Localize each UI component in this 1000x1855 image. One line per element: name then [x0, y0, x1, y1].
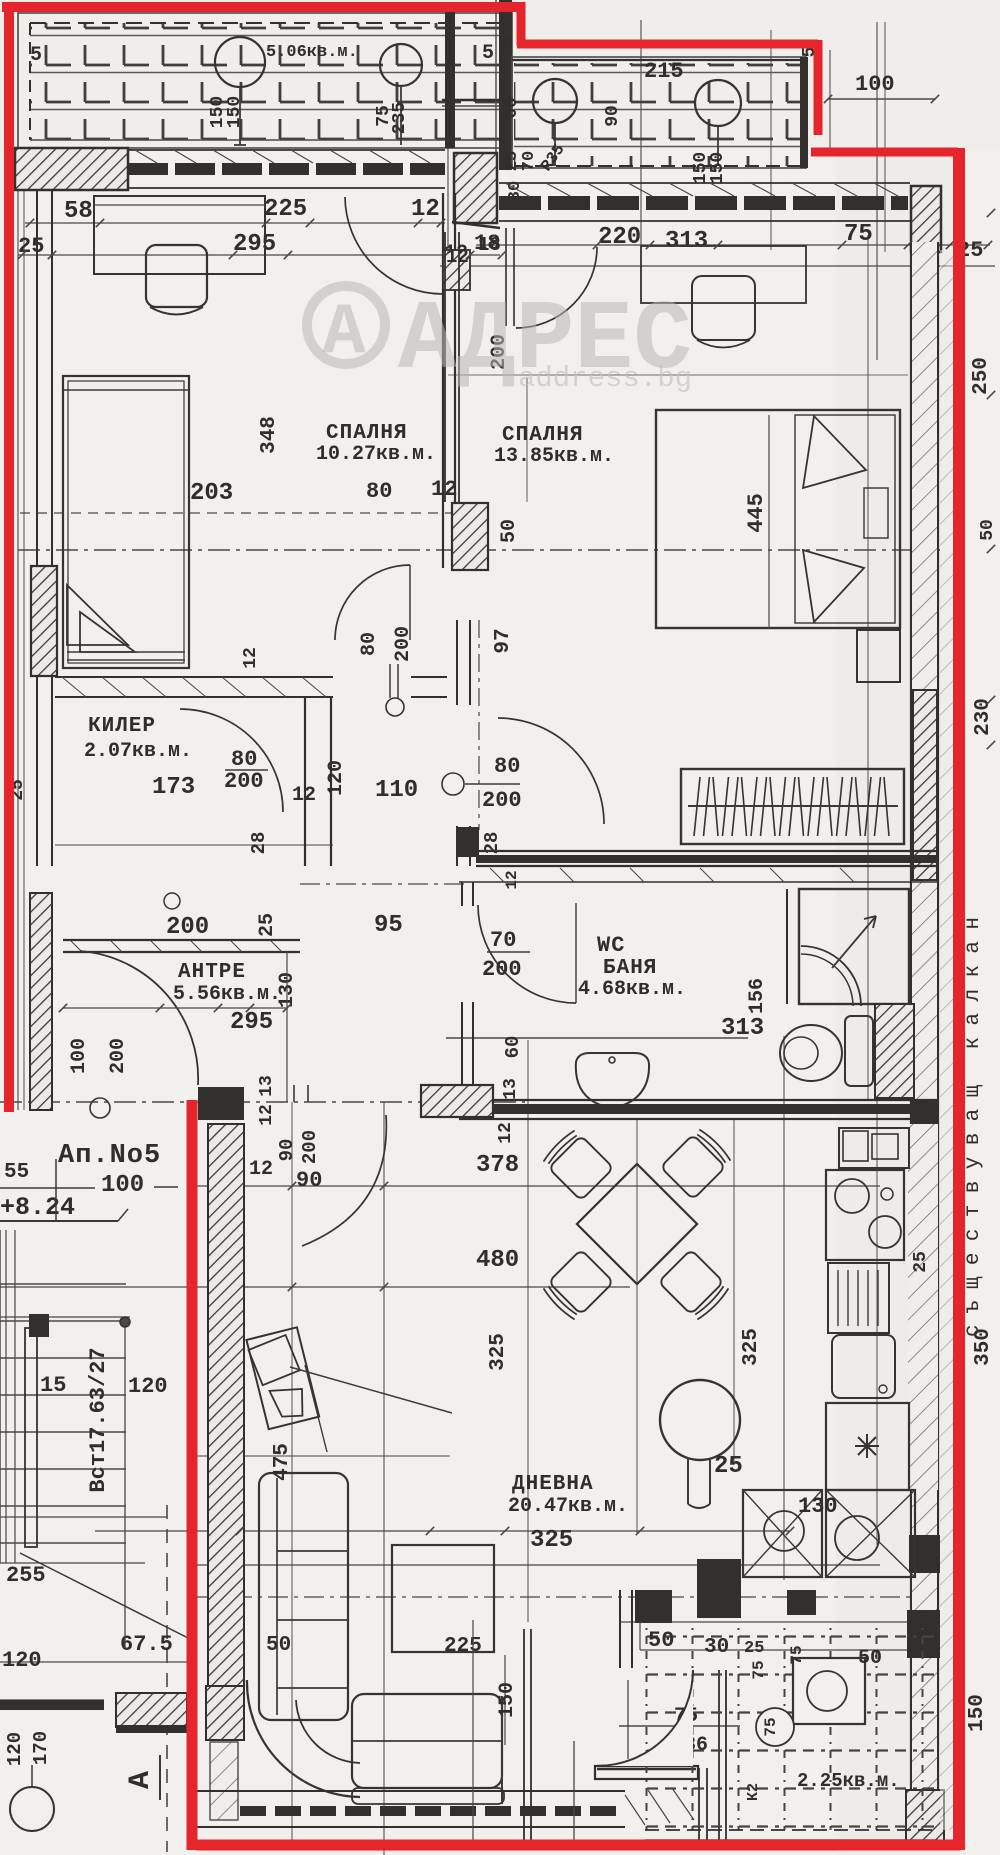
svg-text:313: 313 — [721, 1015, 764, 1042]
svg-text:95: 95 — [374, 912, 403, 939]
svg-text:200: 200 — [482, 788, 522, 813]
svg-text:4.68кв.м.: 4.68кв.м. — [578, 978, 686, 1001]
svg-text:25: 25 — [714, 1453, 743, 1480]
svg-text:156: 156 — [746, 978, 769, 1014]
svg-text:97: 97 — [492, 628, 515, 653]
svg-text:90: 90 — [603, 105, 623, 127]
svg-text:200: 200 — [482, 957, 522, 982]
svg-text:325: 325 — [740, 1328, 763, 1366]
svg-text:220: 220 — [598, 224, 641, 251]
svg-text:50: 50 — [498, 519, 521, 543]
svg-text:28: 28 — [248, 832, 270, 855]
svg-text:75: 75 — [844, 221, 873, 248]
svg-text:10.27кв.м.: 10.27кв.м. — [316, 443, 436, 466]
svg-text:200: 200 — [166, 914, 209, 941]
svg-text:18: 18 — [478, 234, 501, 256]
svg-text:КИЛЕР: КИЛЕР — [88, 715, 156, 738]
svg-text:Ап.No5: Ап.No5 — [58, 1141, 161, 1171]
svg-text:70: 70 — [490, 928, 516, 953]
svg-text:200: 200 — [107, 1038, 130, 1074]
svg-text:225: 225 — [264, 196, 307, 223]
svg-text:313: 313 — [665, 228, 708, 255]
svg-text:295: 295 — [230, 1009, 273, 1036]
svg-text:225: 225 — [444, 1635, 482, 1658]
svg-text:30: 30 — [704, 1636, 729, 1659]
svg-text:5.56кв.м.: 5.56кв.м. — [173, 983, 281, 1006]
svg-text:20.47кв.м.: 20.47кв.м. — [508, 1495, 628, 1518]
svg-text:120: 120 — [4, 1732, 26, 1766]
svg-text:150: 150 — [708, 152, 728, 184]
svg-text:120: 120 — [128, 1374, 168, 1399]
svg-text:445: 445 — [744, 493, 769, 533]
svg-text:130: 130 — [798, 1494, 838, 1519]
svg-text:230: 230 — [972, 698, 995, 736]
svg-text:2.25кв.м.: 2.25кв.м. — [797, 1770, 900, 1792]
svg-text:12: 12 — [249, 1158, 273, 1181]
svg-text:12: 12 — [411, 196, 440, 223]
svg-text:5: 5 — [498, 37, 518, 48]
svg-text:150: 150 — [225, 96, 245, 128]
svg-text:200: 200 — [224, 769, 264, 794]
svg-text:75: 75 — [762, 1717, 780, 1736]
svg-text:СПАЛНЯ: СПАЛНЯ — [326, 422, 408, 445]
svg-text:АНТРЕ: АНТРЕ — [178, 961, 246, 984]
svg-text:215: 215 — [644, 59, 684, 84]
svg-text:Вст17.63/27: Вст17.63/27 — [86, 1347, 111, 1492]
svg-text:200: 200 — [299, 1130, 321, 1164]
svg-text:12: 12 — [241, 647, 261, 669]
svg-text:100: 100 — [68, 1038, 91, 1074]
svg-text:150: 150 — [966, 1694, 989, 1732]
svg-text:90: 90 — [276, 1139, 298, 1162]
svg-text:200: 200 — [392, 626, 415, 662]
svg-text:250: 250 — [970, 357, 993, 395]
svg-text:60: 60 — [502, 97, 522, 119]
svg-text:255: 255 — [6, 1563, 46, 1588]
svg-text:25: 25 — [911, 1251, 931, 1273]
svg-text:150: 150 — [496, 1682, 519, 1718]
svg-text:2.07кв.м.: 2.07кв.м. — [84, 740, 192, 763]
svg-text:12: 12 — [257, 1104, 277, 1126]
svg-text:12: 12 — [496, 1122, 516, 1144]
svg-text:12: 12 — [292, 784, 316, 807]
svg-text:90: 90 — [296, 1168, 322, 1193]
svg-text:12: 12 — [446, 246, 469, 268]
svg-text:120: 120 — [325, 760, 348, 796]
svg-text:378: 378 — [476, 1152, 519, 1179]
svg-text:50: 50 — [648, 1628, 674, 1653]
svg-text:58: 58 — [64, 198, 93, 225]
svg-text:480: 480 — [476, 1247, 519, 1274]
svg-text:80: 80 — [358, 632, 381, 656]
svg-text:СПАЛНЯ: СПАЛНЯ — [502, 424, 584, 447]
svg-text:ДНЕВНА: ДНЕВНА — [512, 1473, 594, 1496]
svg-text:235: 235 — [390, 102, 410, 134]
svg-text:5: 5 — [30, 44, 42, 67]
svg-text:348: 348 — [258, 416, 281, 454]
svg-text:50: 50 — [266, 1634, 291, 1657]
svg-text:80: 80 — [366, 479, 392, 504]
svg-text:325: 325 — [487, 1333, 510, 1371]
svg-text:100: 100 — [101, 1172, 144, 1199]
svg-text:+8.24: +8.24 — [0, 1193, 75, 1222]
svg-text:170: 170 — [30, 1731, 52, 1765]
svg-text:25: 25 — [744, 1639, 764, 1658]
svg-text:60: 60 — [502, 1036, 524, 1059]
svg-text:К2: К2 — [745, 1783, 762, 1801]
svg-text:325: 325 — [530, 1527, 573, 1554]
svg-text:A: A — [322, 292, 366, 374]
svg-text:5: 5 — [482, 42, 494, 65]
svg-text:12: 12 — [503, 870, 521, 889]
svg-text:67.5: 67.5 — [120, 1632, 173, 1657]
svg-text:13.85кв.м.: 13.85кв.м. — [494, 445, 614, 468]
svg-text:WC: WC — [597, 933, 625, 958]
svg-text:475: 475 — [271, 1443, 294, 1481]
svg-text:БАНЯ: БАНЯ — [603, 957, 657, 980]
svg-text:5.06кв.м.: 5.06кв.м. — [266, 43, 358, 62]
svg-text:100: 100 — [855, 72, 895, 97]
svg-text:address.bg: address.bg — [518, 362, 692, 395]
svg-text:80: 80 — [494, 754, 520, 779]
svg-text:50: 50 — [978, 519, 998, 541]
svg-text:110: 110 — [375, 777, 418, 804]
svg-text:13: 13 — [501, 1078, 521, 1100]
svg-text:75: 75 — [750, 1660, 768, 1679]
svg-text:15: 15 — [40, 1373, 66, 1398]
svg-text:173: 173 — [152, 774, 195, 801]
svg-text:295: 295 — [233, 231, 276, 258]
svg-text:А: А — [124, 1771, 158, 1789]
svg-text:120: 120 — [2, 1648, 42, 1673]
svg-text:75: 75 — [788, 1645, 806, 1664]
svg-text:70: 70 — [520, 151, 539, 171]
svg-text:55: 55 — [4, 1161, 29, 1184]
svg-text:203: 203 — [190, 480, 233, 507]
svg-text:13: 13 — [257, 1075, 277, 1097]
svg-text:50: 50 — [858, 1647, 882, 1670]
svg-text:25: 25 — [256, 913, 279, 937]
